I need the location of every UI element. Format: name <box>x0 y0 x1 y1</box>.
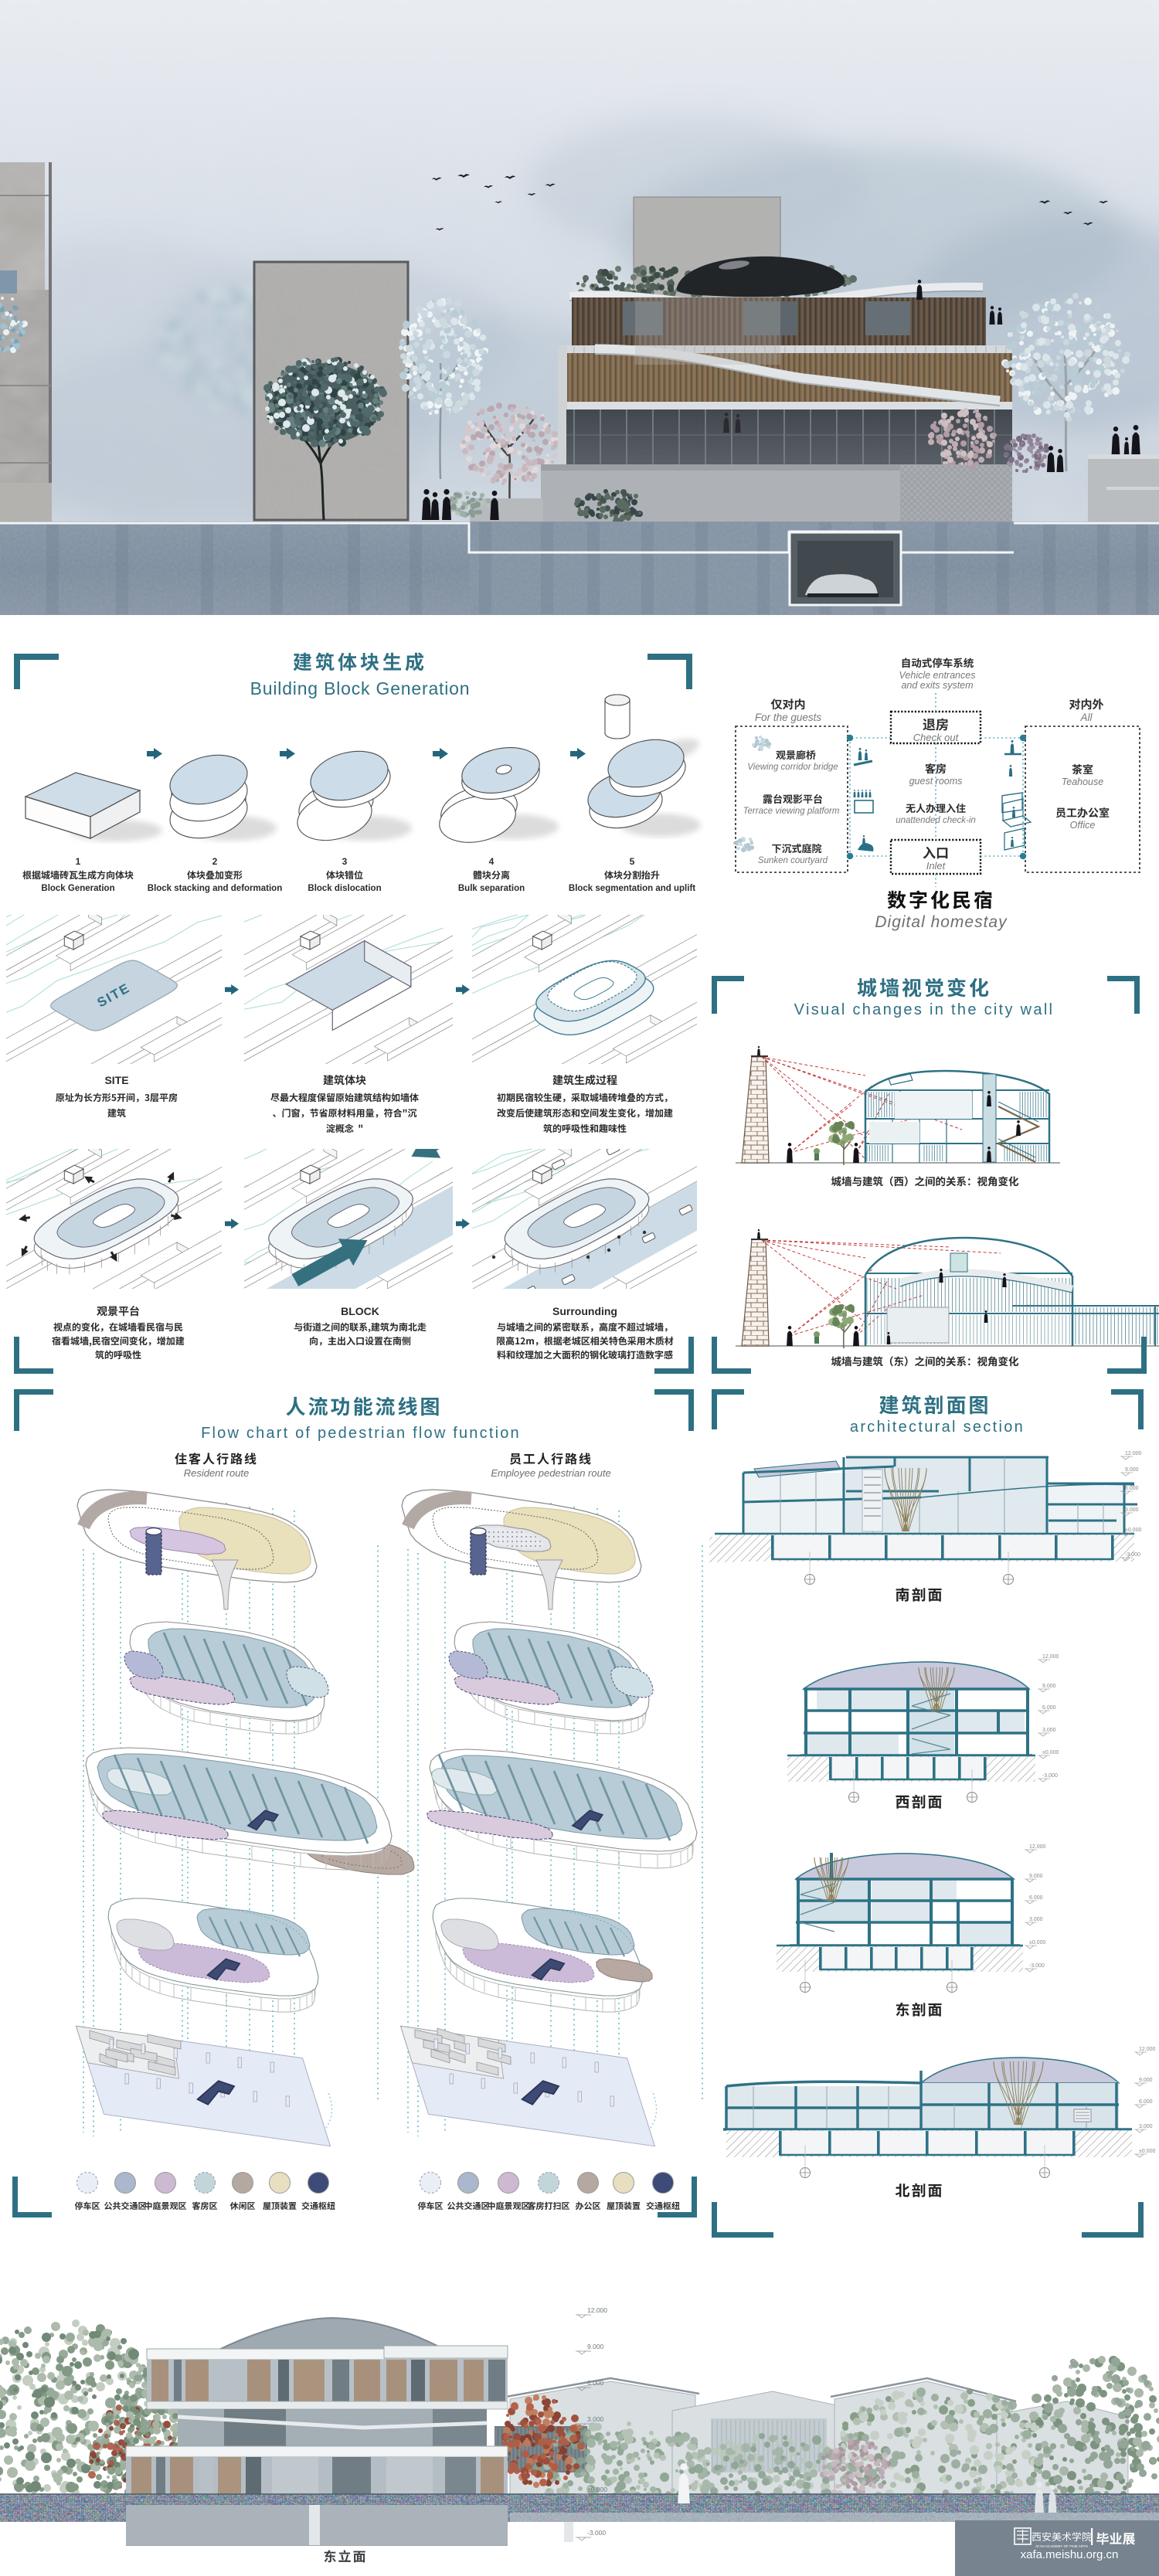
svg-text:9.000: 9.000 <box>1139 2078 1153 2083</box>
svg-text:±0.000: ±0.000 <box>1139 2149 1155 2154</box>
svg-text:Visual changes in the city wal: Visual changes in the city wall <box>794 1001 1055 1018</box>
svg-text:Block Generation: Block Generation <box>41 884 114 893</box>
svg-text:3.000: 3.000 <box>1042 1728 1056 1733</box>
svg-text:5: 5 <box>630 856 635 867</box>
svg-text:Terrace viewing platform: Terrace viewing platform <box>743 807 840 816</box>
svg-text:9.000: 9.000 <box>1042 1684 1056 1689</box>
svg-text:6.000: 6.000 <box>1029 1895 1043 1901</box>
svg-text:9.000: 9.000 <box>1029 1874 1043 1879</box>
svg-text:Resident route: Resident route <box>184 1467 250 1479</box>
svg-text:3: 3 <box>342 856 348 867</box>
svg-text:-3.000: -3.000 <box>1042 1773 1058 1779</box>
svg-text:1: 1 <box>76 856 81 867</box>
svg-text:For the guests: For the guests <box>755 712 822 723</box>
svg-text:Teahouse: Teahouse <box>1062 777 1103 787</box>
svg-text:6.000: 6.000 <box>1139 2099 1153 2105</box>
svg-text:6.000: 6.000 <box>1125 1486 1139 1491</box>
svg-text:Digital homestay: Digital homestay <box>875 913 1008 931</box>
svg-text:3.000: 3.000 <box>1029 1917 1043 1922</box>
svg-text:12.000: 12.000 <box>1029 1844 1046 1850</box>
svg-text:Bulk separation: Bulk separation <box>458 884 525 893</box>
svg-text:Office: Office <box>1070 820 1096 831</box>
svg-text:±0.000: ±0.000 <box>1029 1940 1045 1946</box>
svg-text:Block dislocation: Block dislocation <box>308 884 381 893</box>
svg-text:BLOCK: BLOCK <box>341 1305 379 1317</box>
svg-text:12.000: 12.000 <box>1125 1451 1142 1456</box>
svg-text:architectural section: architectural section <box>850 1419 1025 1436</box>
svg-text:4: 4 <box>489 856 495 867</box>
svg-text:Vehicle entrances: Vehicle entrances <box>899 670 976 681</box>
svg-text:3.000: 3.000 <box>1139 2124 1153 2129</box>
svg-text:Check out: Check out <box>913 732 960 743</box>
svg-text:-3.000: -3.000 <box>1125 1552 1140 1558</box>
svg-text:3.000: 3.000 <box>1125 1507 1139 1513</box>
svg-text:12.000: 12.000 <box>1042 1654 1059 1660</box>
svg-text:9.000: 9.000 <box>1125 1467 1139 1473</box>
svg-text:6.000: 6.000 <box>1042 1705 1056 1711</box>
svg-text:Block segmentation and uplift: Block segmentation and uplift <box>569 884 695 893</box>
svg-text:and exits system: and exits system <box>901 680 973 691</box>
svg-text:12.000: 12.000 <box>1139 2047 1156 2052</box>
svg-text:Surrounding: Surrounding <box>552 1305 617 1317</box>
svg-text:SITE: SITE <box>104 1074 128 1086</box>
svg-text:Block stacking and deformation: Block stacking and deformation <box>148 884 282 893</box>
svg-text:Employee pedestrian route: Employee pedestrian route <box>491 1467 610 1479</box>
svg-text:Sunken courtyard: Sunken courtyard <box>758 856 828 865</box>
svg-text:Viewing corridor bridge: Viewing corridor bridge <box>747 763 838 772</box>
svg-text:All: All <box>1079 712 1093 723</box>
svg-text:-3.000: -3.000 <box>1029 1963 1045 1969</box>
svg-text:2: 2 <box>212 856 218 867</box>
svg-text:±0.000: ±0.000 <box>1042 1750 1059 1755</box>
svg-text:Inlet: Inlet <box>926 860 947 872</box>
svg-text:Flow chart of pedestrian flow: Flow chart of pedestrian flow function <box>201 1425 521 1442</box>
svg-text:Building Block Generation: Building Block Generation <box>250 678 471 698</box>
svg-text:±0.000: ±0.000 <box>1125 1528 1141 1533</box>
